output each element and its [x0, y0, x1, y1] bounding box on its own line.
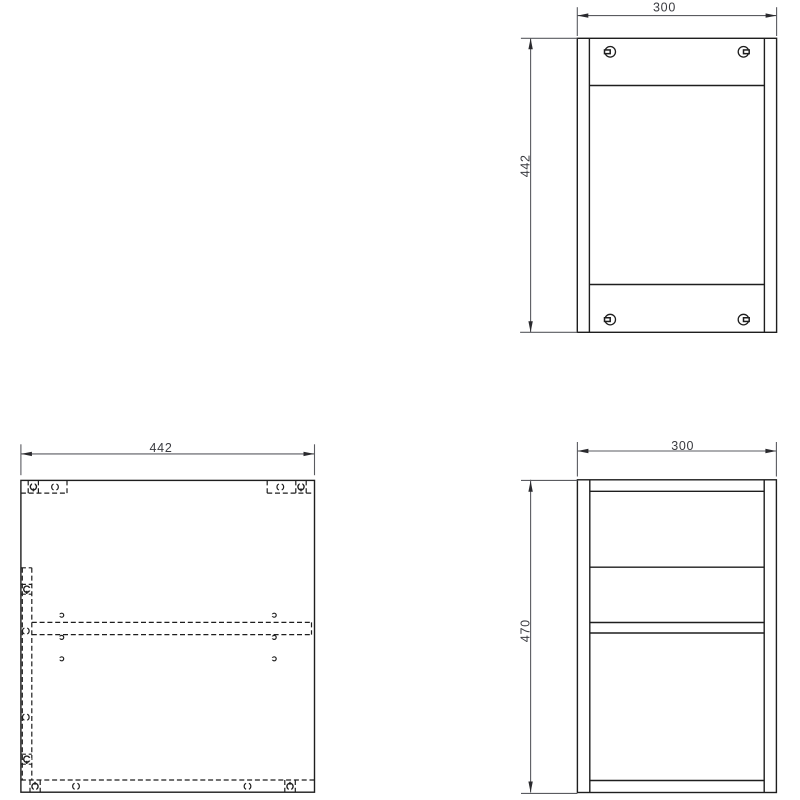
svg-text:442: 442 [150, 441, 173, 455]
svg-text:300: 300 [671, 439, 694, 453]
svg-text:442: 442 [519, 154, 533, 177]
svg-text:300: 300 [653, 1, 676, 15]
svg-text:470: 470 [519, 619, 533, 642]
